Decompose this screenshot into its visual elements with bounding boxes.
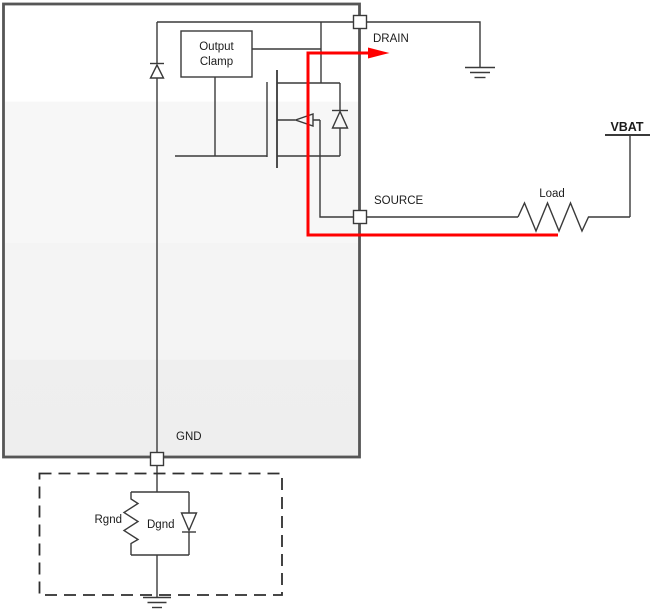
- schematic-canvas: Output Clamp DRAIN SOURCE GND VBAT Load …: [0, 0, 653, 614]
- output-clamp-block: [181, 31, 252, 77]
- drain-label: DRAIN: [373, 33, 409, 45]
- rgnd-resistor-icon: [124, 492, 138, 555]
- source-label: SOURCE: [374, 195, 424, 207]
- gnd-label: GND: [176, 431, 202, 443]
- dgnd-diode-icon: [182, 492, 197, 555]
- rgnd-label: Rgnd: [95, 514, 123, 526]
- current-path-arrow-icon: [368, 48, 390, 59]
- drain-pin: [354, 16, 367, 29]
- load-label: Load: [539, 188, 565, 200]
- output-clamp-label-line1: Output: [199, 41, 234, 53]
- vbat-label: VBAT: [610, 120, 643, 134]
- earth-ground-symbol-icon: [143, 598, 171, 608]
- output-clamp-label-line2: Clamp: [200, 56, 233, 68]
- gnd-pin: [151, 453, 164, 466]
- load-resistor-icon: [518, 203, 630, 231]
- drain-ground-symbol-icon: [465, 68, 495, 78]
- dgnd-diode-triangle: [182, 513, 197, 531]
- dgnd-label: Dgnd: [147, 519, 175, 531]
- source-pin: [354, 211, 367, 224]
- circuit-schematic: Output Clamp DRAIN SOURCE GND VBAT Load …: [0, 0, 653, 614]
